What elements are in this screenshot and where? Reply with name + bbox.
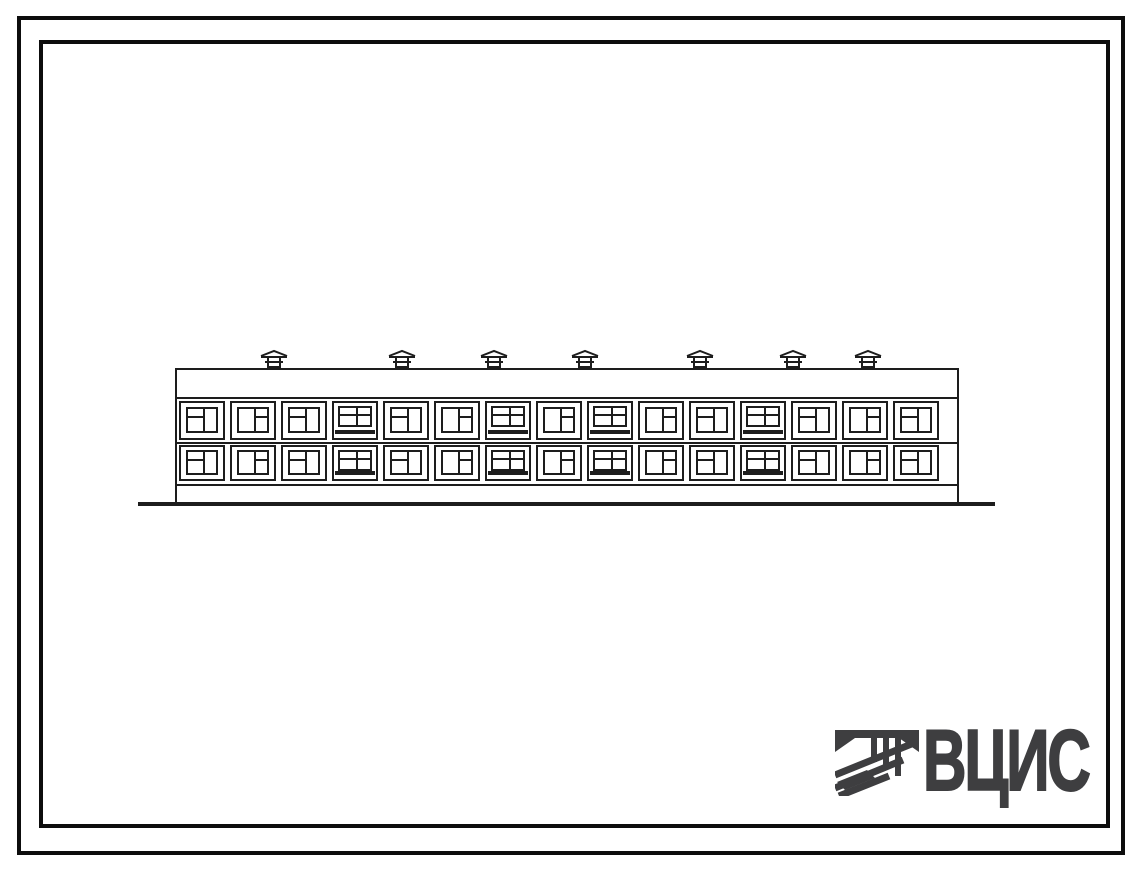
window-transom xyxy=(290,459,305,461)
window-transom xyxy=(800,416,815,418)
window-mullion xyxy=(509,452,511,469)
window-mullion xyxy=(662,452,664,473)
ground-line xyxy=(138,502,995,506)
window-bay xyxy=(434,445,480,481)
window xyxy=(798,450,830,475)
window-transom xyxy=(902,459,917,461)
window xyxy=(900,450,932,475)
window xyxy=(441,450,473,475)
window-mullion xyxy=(866,409,868,431)
window-transom xyxy=(748,414,778,416)
window-mullion xyxy=(611,452,613,469)
window-bay xyxy=(893,401,939,440)
vcis-logo-text: ВЦИС xyxy=(923,722,1089,800)
chimney xyxy=(852,349,884,369)
balcony-railing xyxy=(335,471,375,475)
window xyxy=(645,450,677,475)
window xyxy=(798,407,830,433)
window-transom xyxy=(698,459,713,461)
chimney xyxy=(478,349,510,369)
window xyxy=(390,450,422,475)
window-bay xyxy=(791,401,837,440)
balcony-railing xyxy=(590,430,630,434)
window xyxy=(186,450,218,475)
window-bay xyxy=(638,401,684,440)
window-mullion xyxy=(917,409,919,431)
window-bay xyxy=(179,401,225,440)
window-transom xyxy=(662,459,675,461)
window-transom xyxy=(392,459,407,461)
window-mullion xyxy=(203,452,205,473)
window-mullion xyxy=(917,452,919,473)
window-transom xyxy=(698,416,713,418)
upper-floor-windows-row xyxy=(177,399,957,444)
balcony-railing xyxy=(488,430,528,434)
window-mullion xyxy=(458,452,460,473)
window-mullion xyxy=(203,409,205,431)
window xyxy=(491,406,525,427)
window-bay xyxy=(842,401,888,440)
window-bay xyxy=(536,401,582,440)
window-bay xyxy=(536,445,582,481)
window-mullion xyxy=(305,452,307,473)
window-transom xyxy=(340,458,370,460)
window-mullion xyxy=(764,408,766,425)
window xyxy=(338,406,372,427)
balcony-railing xyxy=(488,471,528,475)
window-transom xyxy=(866,459,879,461)
window xyxy=(543,450,575,475)
window-mullion xyxy=(407,409,409,431)
balcony-window-bay xyxy=(332,401,378,440)
window-transom xyxy=(493,414,523,416)
window-bay xyxy=(689,445,735,481)
window xyxy=(186,407,218,433)
window xyxy=(543,407,575,433)
window xyxy=(696,450,728,475)
window-transom xyxy=(188,416,203,418)
window-transom xyxy=(392,416,407,418)
window-bay xyxy=(638,445,684,481)
chimney xyxy=(684,349,716,369)
balcony-railing xyxy=(590,471,630,475)
window xyxy=(237,407,269,433)
window-bay xyxy=(689,401,735,440)
plinth-band xyxy=(175,486,959,503)
window xyxy=(696,407,728,433)
window xyxy=(849,450,881,475)
window xyxy=(593,406,627,427)
window-transom xyxy=(560,416,573,418)
chimney xyxy=(258,349,290,369)
window-transom xyxy=(748,458,778,460)
balcony-window-bay xyxy=(485,445,531,481)
balcony-window-bay xyxy=(332,445,378,481)
window-mullion xyxy=(458,409,460,431)
window-transom xyxy=(493,458,523,460)
window-mullion xyxy=(254,452,256,473)
window-bay xyxy=(230,401,276,440)
window-transom xyxy=(290,416,305,418)
roof-band xyxy=(175,368,959,397)
window-transom xyxy=(595,414,625,416)
balcony-railing xyxy=(335,430,375,434)
window xyxy=(593,450,627,471)
window-transom xyxy=(254,459,267,461)
balcony-window-bay xyxy=(740,445,786,481)
chimney xyxy=(386,349,418,369)
lower-floor-windows-row xyxy=(177,444,957,484)
balcony-window-bay xyxy=(485,401,531,440)
window-transom xyxy=(188,459,203,461)
window-bay xyxy=(179,445,225,481)
balcony-window-bay xyxy=(587,445,633,481)
window-mullion xyxy=(713,409,715,431)
window-mullion xyxy=(356,408,358,425)
balcony-window-bay xyxy=(587,401,633,440)
window xyxy=(288,407,320,433)
window-bay xyxy=(893,445,939,481)
window xyxy=(390,407,422,433)
window-mullion xyxy=(662,409,664,431)
window xyxy=(288,450,320,475)
window-transom xyxy=(595,458,625,460)
window-transom xyxy=(800,459,815,461)
window xyxy=(338,450,372,471)
window-bay xyxy=(281,401,327,440)
window-mullion xyxy=(866,452,868,473)
facade-walls xyxy=(175,397,959,486)
window-mullion xyxy=(560,452,562,473)
window-bay xyxy=(383,445,429,481)
window-bay xyxy=(791,445,837,481)
window-mullion xyxy=(815,452,817,473)
window-bay xyxy=(281,445,327,481)
window xyxy=(491,450,525,471)
window-mullion xyxy=(407,452,409,473)
balcony-railing xyxy=(743,430,783,434)
window-transom xyxy=(340,414,370,416)
chimney xyxy=(569,349,601,369)
window-mullion xyxy=(305,409,307,431)
window-mullion xyxy=(254,409,256,431)
window xyxy=(849,407,881,433)
window-transom xyxy=(866,416,879,418)
window xyxy=(237,450,269,475)
window-bay xyxy=(230,445,276,481)
window xyxy=(746,406,780,427)
balcony-railing xyxy=(743,471,783,475)
window xyxy=(900,407,932,433)
hatched-monogram-icon xyxy=(835,728,919,796)
balcony-window-bay xyxy=(740,401,786,440)
window-transom xyxy=(902,416,917,418)
chimney xyxy=(777,349,809,369)
window-mullion xyxy=(560,409,562,431)
window-transom xyxy=(458,416,471,418)
window-transom xyxy=(254,416,267,418)
window-transom xyxy=(458,459,471,461)
window xyxy=(441,407,473,433)
window-bay xyxy=(383,401,429,440)
scanned-drawing-sheet: ВЦИС xyxy=(0,0,1139,869)
vcis-logo: ВЦИС xyxy=(835,722,1139,800)
window-mullion xyxy=(611,408,613,425)
window xyxy=(746,450,780,471)
window-bay xyxy=(842,445,888,481)
window-bay xyxy=(434,401,480,440)
window-mullion xyxy=(509,408,511,425)
window-mullion xyxy=(356,452,358,469)
window-mullion xyxy=(764,452,766,469)
window xyxy=(645,407,677,433)
window-transom xyxy=(662,416,675,418)
window-transom xyxy=(560,459,573,461)
window-mullion xyxy=(815,409,817,431)
window-mullion xyxy=(713,452,715,473)
